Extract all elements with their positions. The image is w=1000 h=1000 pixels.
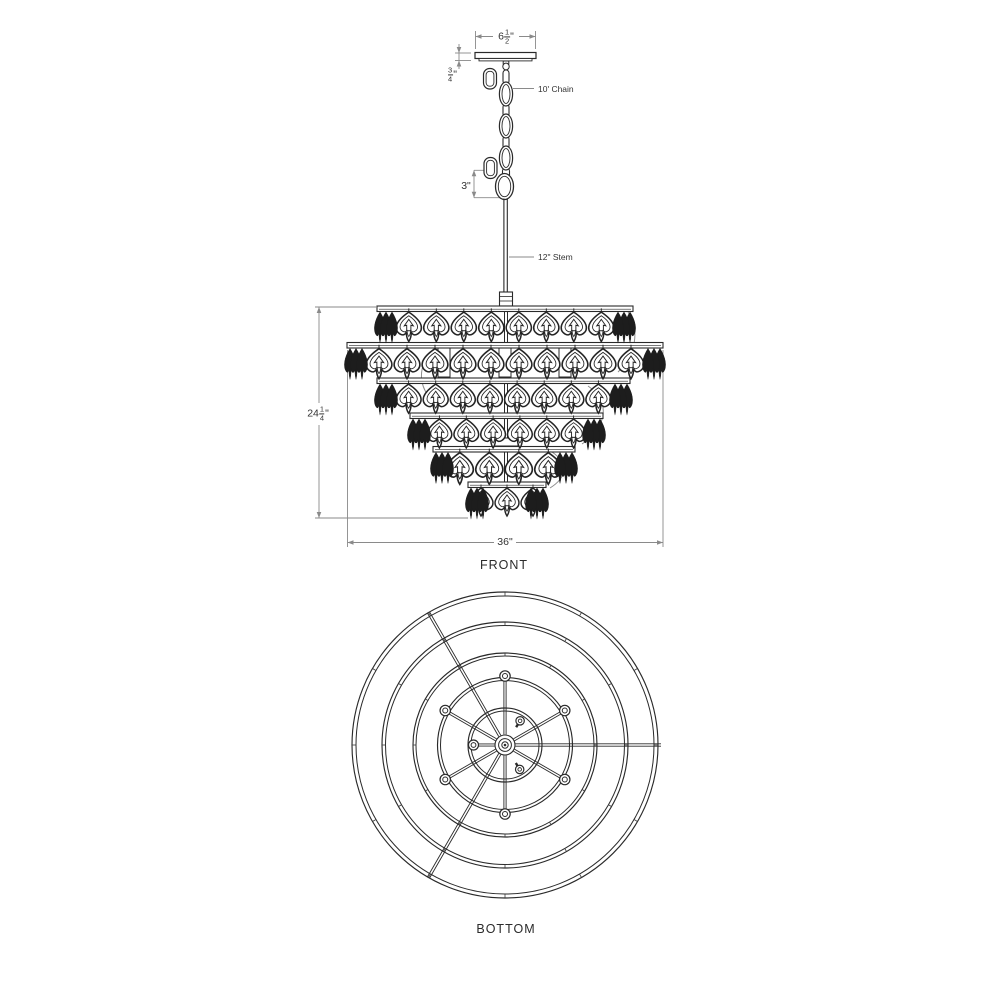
ring-tick xyxy=(634,669,637,671)
canopy-plate xyxy=(475,53,536,59)
bottom-view xyxy=(352,592,661,898)
crystal-drop xyxy=(534,345,560,379)
crystal-drop xyxy=(450,380,475,413)
dim-canopy-height: 34" xyxy=(446,66,458,83)
chain-link xyxy=(499,146,512,170)
crystal-drop xyxy=(559,380,584,413)
ring-tick xyxy=(398,805,401,807)
keyhole-tail xyxy=(516,724,518,727)
crystal-drop xyxy=(394,345,420,379)
crystal-drop xyxy=(427,415,452,448)
crystal-drop xyxy=(396,308,421,341)
dim-arrow xyxy=(530,34,536,39)
crystal-drop xyxy=(424,308,449,341)
keyhole-tail xyxy=(516,763,518,766)
crystal-drop xyxy=(534,415,559,448)
crystal-drop xyxy=(505,449,532,485)
dim-arrow xyxy=(476,34,482,39)
crystal-drop xyxy=(561,415,586,448)
crystal-drop xyxy=(477,380,502,413)
bolt xyxy=(560,774,570,784)
ring-tick xyxy=(372,820,375,822)
crystal-drop xyxy=(505,380,530,413)
tier-plate xyxy=(347,343,663,349)
crystal-drop xyxy=(532,380,557,413)
spec-sheet-page: 612" 34" 10' Chain 3" 12" Stem 2414" 36"… xyxy=(0,0,1000,1000)
front-view xyxy=(344,53,665,519)
crystal-drop xyxy=(589,308,614,341)
chain-link xyxy=(499,82,512,106)
support-arm xyxy=(430,755,501,878)
dim-body-width: 36" xyxy=(496,537,513,548)
crystal-drop xyxy=(495,485,519,517)
chain-link xyxy=(499,114,512,138)
stem-collar xyxy=(500,292,513,306)
dim-canopy-width: 612" xyxy=(497,28,515,45)
bolt xyxy=(469,740,479,750)
ring-tick xyxy=(634,820,637,822)
ring-tick xyxy=(372,669,375,671)
canopy-knob xyxy=(503,63,509,70)
crystal-drop xyxy=(506,308,531,341)
crystal-drop xyxy=(423,380,448,413)
dim-arrow xyxy=(472,170,477,176)
dim-arrow xyxy=(348,540,354,545)
crystal-drop xyxy=(479,308,504,341)
stem-callout: 12" Stem xyxy=(537,253,574,262)
ring-tick xyxy=(580,874,582,877)
crystal-drop xyxy=(366,345,392,379)
dim-arrow xyxy=(457,47,462,53)
technical-drawing-svg xyxy=(0,0,1000,1000)
dim-arrow xyxy=(472,192,477,198)
bottom-view-label: BOTTOM xyxy=(475,923,536,936)
support-arm xyxy=(427,613,498,736)
dim-arrow xyxy=(317,307,322,313)
crystal-drop xyxy=(586,380,611,413)
chain-callout: 10' Chain xyxy=(537,85,575,94)
tier-plate xyxy=(433,447,575,453)
crystal-drop xyxy=(534,308,559,341)
dim-arrow xyxy=(317,512,322,518)
crystal-drop xyxy=(450,345,476,379)
support-arm xyxy=(427,753,498,876)
ring-tick xyxy=(565,638,567,641)
bolt xyxy=(440,774,450,784)
support-arm xyxy=(430,612,501,735)
crystal-drop xyxy=(396,380,421,413)
bolt xyxy=(500,671,510,681)
dim-body-height: 2414" xyxy=(306,405,330,422)
crystal-drop xyxy=(454,415,479,448)
crystal-drop xyxy=(561,308,586,341)
dim-loop-height: 3" xyxy=(460,181,472,192)
ring-tick xyxy=(608,805,611,807)
bolt xyxy=(440,705,450,715)
hub-center xyxy=(504,744,507,747)
crystal-drop xyxy=(476,449,503,485)
ring-tick xyxy=(608,683,611,685)
ring-tick xyxy=(565,848,567,851)
dim-arrow xyxy=(657,540,663,545)
tier-plate xyxy=(377,306,633,312)
crystal-drop xyxy=(590,345,616,379)
tier-plate xyxy=(377,378,630,384)
crystal-drop xyxy=(451,308,476,341)
bolt xyxy=(500,809,510,819)
crystal-drop xyxy=(618,345,644,379)
bolt xyxy=(560,705,570,715)
front-view-label: FRONT xyxy=(479,559,529,572)
ring-tick xyxy=(398,683,401,685)
ring-tick xyxy=(580,612,582,615)
